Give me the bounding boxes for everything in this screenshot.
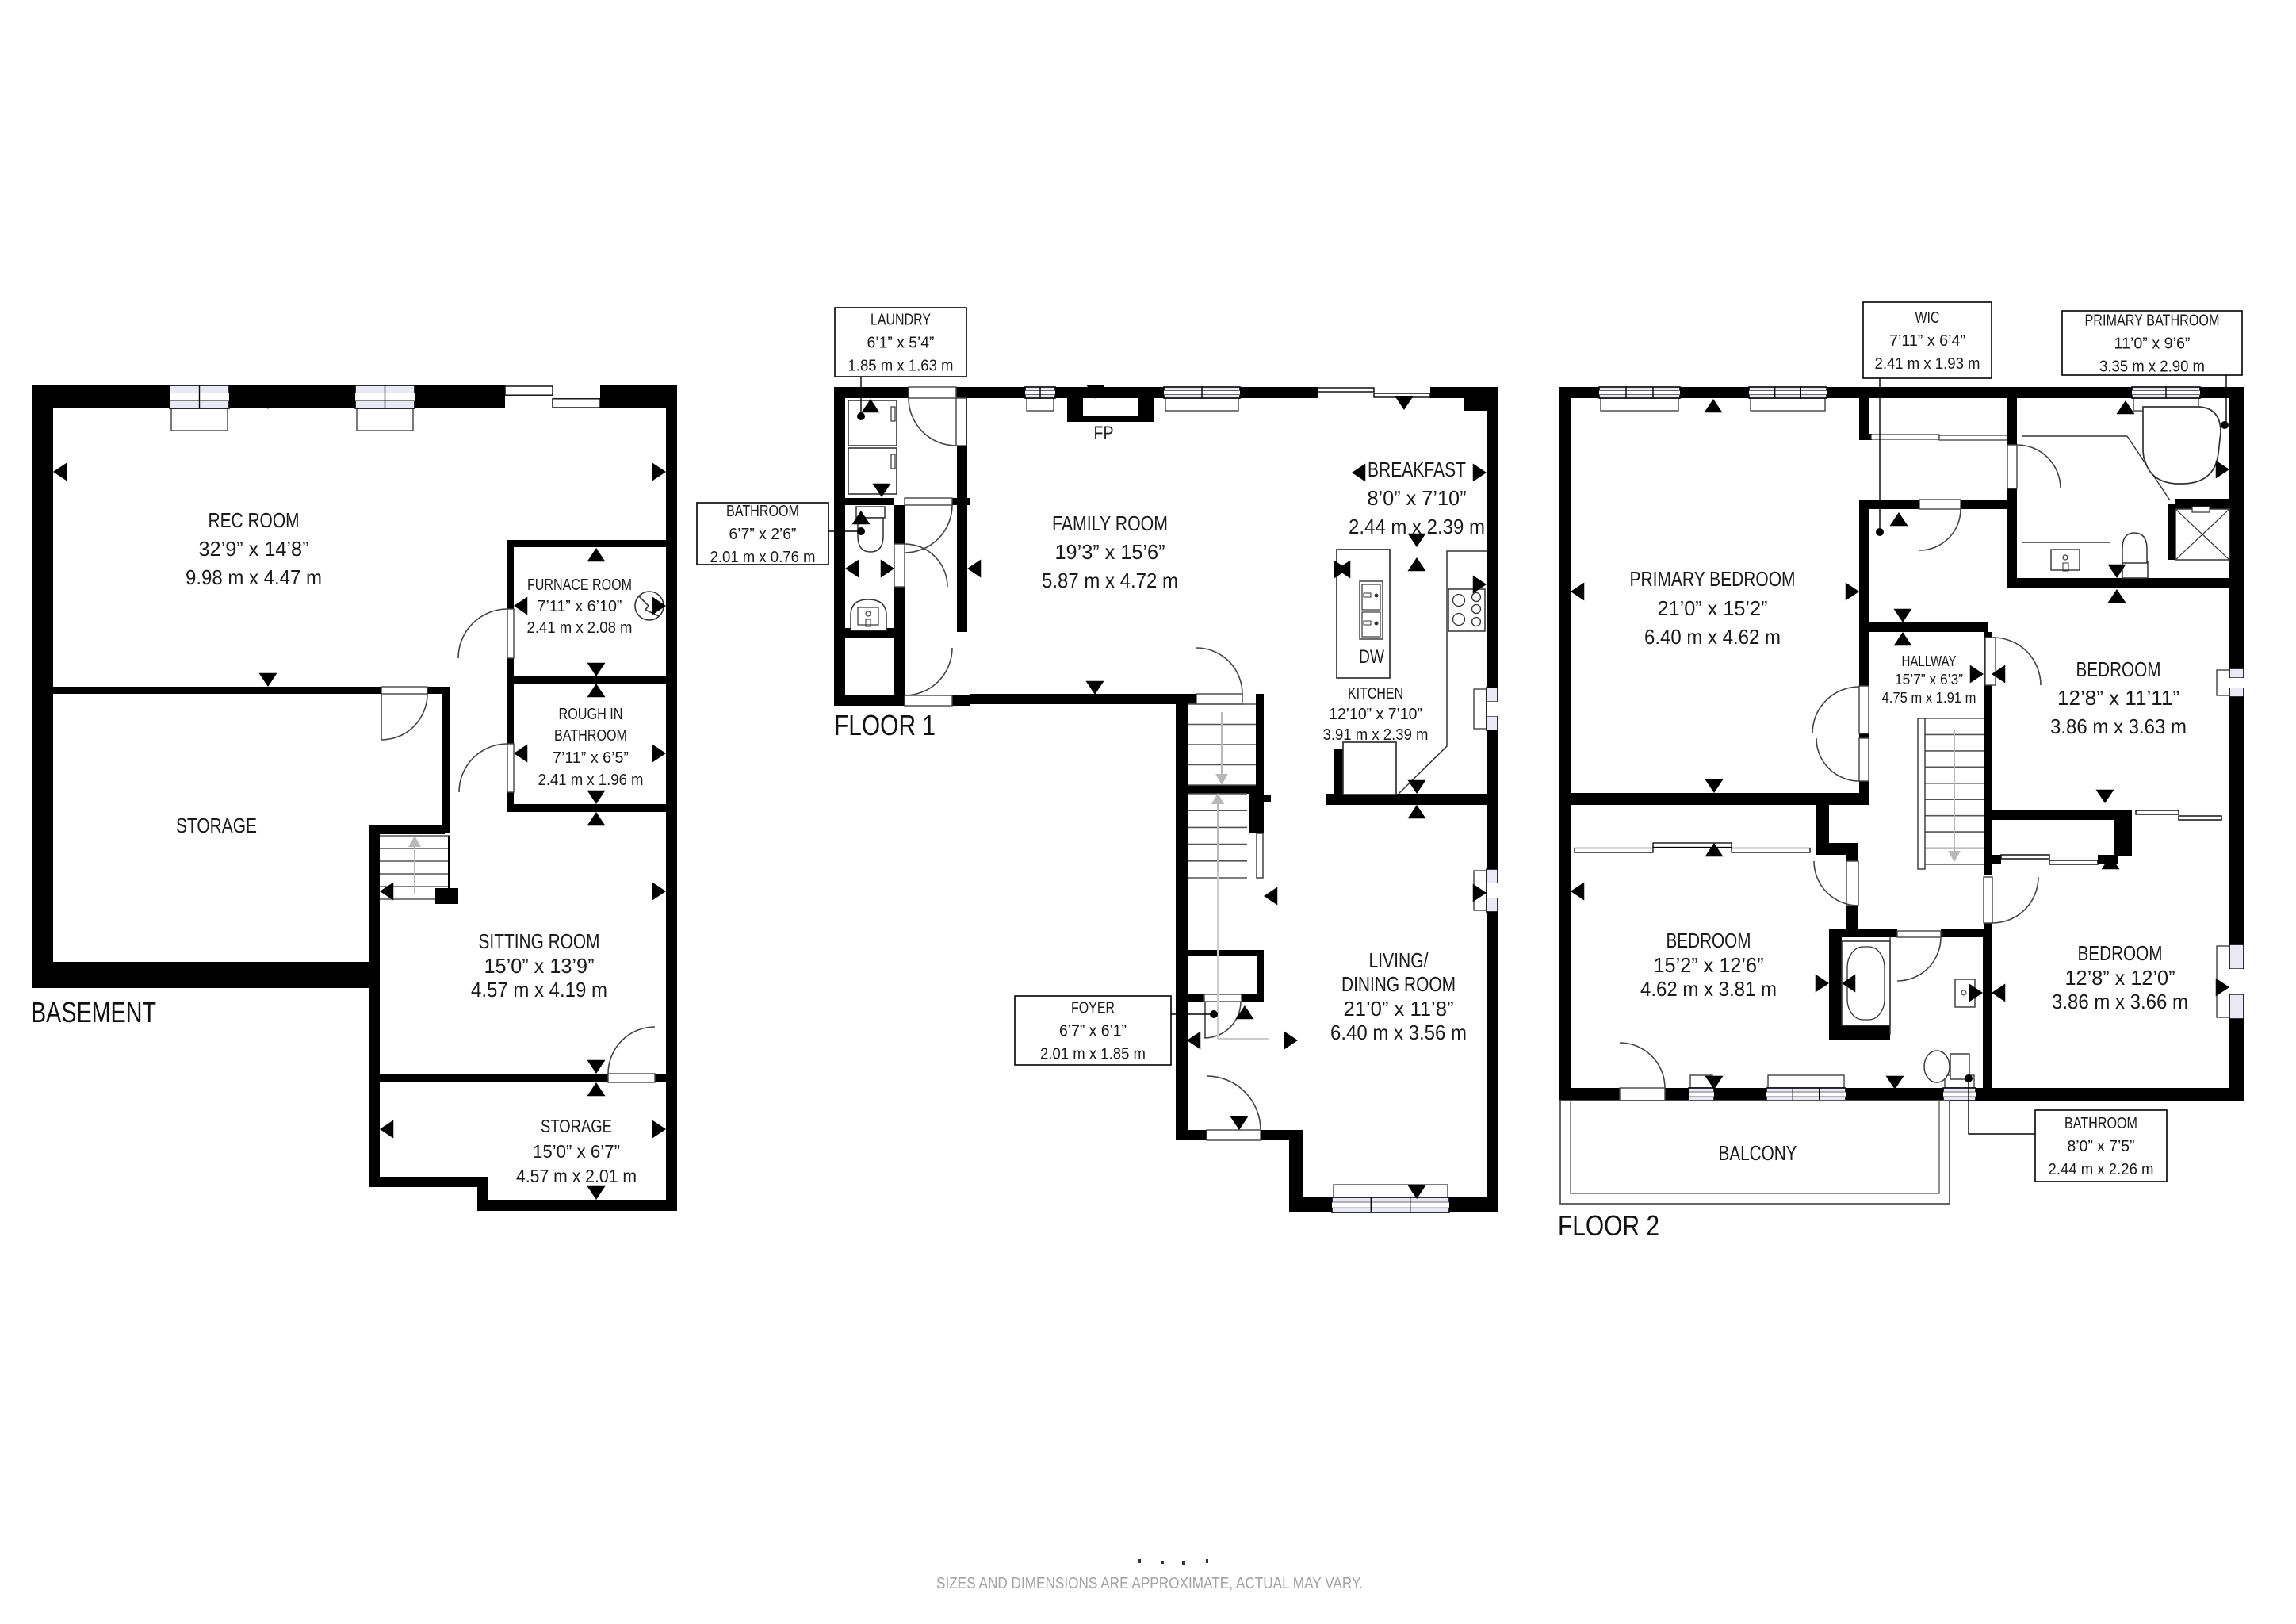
svg-text:15’0” x 13’9”: 15’0” x 13’9” — [484, 954, 595, 978]
svg-text:BEDROOM: BEDROOM — [2076, 657, 2161, 681]
svg-text:BALCONY: BALCONY — [1719, 1141, 1797, 1165]
svg-text:FP: FP — [1094, 423, 1114, 444]
svg-text:BATHROOM: BATHROOM — [2064, 1115, 2137, 1132]
svg-text:BATHROOM: BATHROOM — [726, 503, 799, 520]
svg-text:ROUGH IN: ROUGH IN — [559, 706, 623, 723]
svg-text:PRIMARY BATHROOM: PRIMARY BATHROOM — [2085, 312, 2220, 330]
svg-text:SIZES AND DIMENSIONS ARE APPRO: SIZES AND DIMENSIONS ARE APPROXIMATE, AC… — [936, 1575, 1363, 1592]
svg-text:9.98 m x 4.47 m: 9.98 m x 4.47 m — [186, 565, 322, 589]
svg-text:LIVING/: LIVING/ — [1369, 948, 1429, 972]
svg-text:6’7” x 2’6”: 6’7” x 2’6” — [729, 526, 797, 543]
svg-text:2.41 m x 2.08 m: 2.41 m x 2.08 m — [527, 619, 633, 637]
svg-text:15’7” x 6’3”: 15’7” x 6’3” — [1895, 672, 1963, 688]
svg-text:2.41 m x 1.93 m: 2.41 m x 1.93 m — [1875, 355, 1980, 373]
svg-text:HALLWAY: HALLWAY — [1902, 653, 1957, 669]
svg-text:REC ROOM: REC ROOM — [209, 508, 300, 532]
svg-text:12’8” x 12’0”: 12’8” x 12’0” — [2065, 966, 2175, 990]
svg-text:LAUNDRY: LAUNDRY — [871, 312, 931, 329]
svg-text:STORAGE: STORAGE — [176, 814, 257, 837]
svg-text:3.35 m x 2.90 m: 3.35 m x 2.90 m — [2099, 358, 2205, 376]
svg-text:12’8” x 11’11”: 12’8” x 11’11” — [2057, 686, 2179, 710]
svg-text:BASEMENT: BASEMENT — [31, 996, 156, 1028]
svg-text:WIC: WIC — [1915, 309, 1940, 327]
svg-text:BREAKFAST: BREAKFAST — [1368, 458, 1466, 481]
svg-text:21’0” x 15’2”: 21’0” x 15’2” — [1658, 596, 1768, 620]
svg-text:FURNACE ROOM: FURNACE ROOM — [527, 576, 632, 594]
svg-text:32’9” x 14’8”: 32’9” x 14’8” — [199, 537, 309, 561]
svg-text:19’3” x 15’6”: 19’3” x 15’6” — [1055, 540, 1165, 564]
svg-text:4.75 m x 1.91 m: 4.75 m x 1.91 m — [1882, 690, 1976, 706]
svg-text:21’0” x 11’8”: 21’0” x 11’8” — [1344, 997, 1454, 1021]
svg-text:BEDROOM: BEDROOM — [2078, 941, 2163, 965]
svg-text:FLOOR 2: FLOOR 2 — [1558, 1209, 1659, 1242]
svg-text:BATHROOM: BATHROOM — [554, 727, 627, 745]
svg-text:STORAGE: STORAGE — [541, 1116, 612, 1136]
svg-text:2.44 m x 2.39 m: 2.44 m x 2.39 m — [1349, 515, 1485, 538]
svg-text:7’11” x 6’10”: 7’11” x 6’10” — [538, 598, 622, 615]
svg-text:6’1” x 5’4”: 6’1” x 5’4” — [867, 335, 935, 352]
svg-text:SITTING ROOM: SITTING ROOM — [479, 929, 600, 953]
svg-text:11’0” x 9’6”: 11’0” x 9’6” — [2114, 335, 2191, 353]
svg-text:BEDROOM: BEDROOM — [1667, 929, 1751, 952]
svg-text:2.41 m x 1.96 m: 2.41 m x 1.96 m — [538, 772, 644, 789]
svg-text:2.01 m x 0.76 m: 2.01 m x 0.76 m — [710, 549, 816, 566]
svg-text:KITCHEN: KITCHEN — [1348, 685, 1403, 703]
svg-text:DW: DW — [1359, 646, 1384, 668]
svg-text:6.40 m x 4.62 m: 6.40 m x 4.62 m — [1644, 625, 1781, 649]
svg-text:15’2” x 12’6”: 15’2” x 12’6” — [1654, 953, 1764, 977]
svg-text:12’10” x 7’10”: 12’10” x 7’10” — [1329, 706, 1422, 723]
svg-text:1.85 m x 1.63 m: 1.85 m x 1.63 m — [848, 358, 954, 375]
svg-text:8’0” x 7’10”: 8’0” x 7’10” — [1368, 486, 1467, 510]
svg-text:5.87 m x 4.72 m: 5.87 m x 4.72 m — [1042, 569, 1178, 592]
svg-text:8’0” x 7’5”: 8’0” x 7’5” — [2068, 1138, 2135, 1155]
svg-text:4.57 m x 4.19 m: 4.57 m x 4.19 m — [471, 978, 607, 1002]
svg-text:3.91 m x 2.39 m: 3.91 m x 2.39 m — [1323, 726, 1429, 744]
svg-text:2.01 m x 1.85 m: 2.01 m x 1.85 m — [1040, 1046, 1146, 1063]
svg-text:FAMILY ROOM: FAMILY ROOM — [1052, 511, 1168, 535]
svg-text:2.44 m x 2.26 m: 2.44 m x 2.26 m — [2049, 1161, 2154, 1178]
svg-text:15’0” x 6’7”: 15’0” x 6’7” — [533, 1141, 620, 1162]
svg-text:6.40 m x 3.56 m: 6.40 m x 3.56 m — [1330, 1021, 1467, 1044]
svg-text:7’11” x 6’4”: 7’11” x 6’4” — [1889, 332, 1965, 350]
svg-text:FLOOR 1: FLOOR 1 — [834, 709, 936, 741]
svg-text:FOYER: FOYER — [1071, 1000, 1115, 1017]
svg-text:3.86 m x 3.63 m: 3.86 m x 3.63 m — [2050, 714, 2187, 738]
svg-text:DINING ROOM: DINING ROOM — [1341, 972, 1456, 996]
svg-text:4.62 m x 3.81 m: 4.62 m x 3.81 m — [1640, 977, 1777, 1001]
svg-text:7’11” x 6’5”: 7’11” x 6’5” — [553, 749, 629, 767]
svg-text:PRIMARY BEDROOM: PRIMARY BEDROOM — [1630, 567, 1796, 591]
svg-text:6’7” x 6’1”: 6’7” x 6’1” — [1059, 1023, 1127, 1040]
svg-text:3.86 m x 3.66 m: 3.86 m x 3.66 m — [2052, 990, 2188, 1013]
svg-text:4.57 m x 2.01 m: 4.57 m x 2.01 m — [516, 1166, 637, 1186]
